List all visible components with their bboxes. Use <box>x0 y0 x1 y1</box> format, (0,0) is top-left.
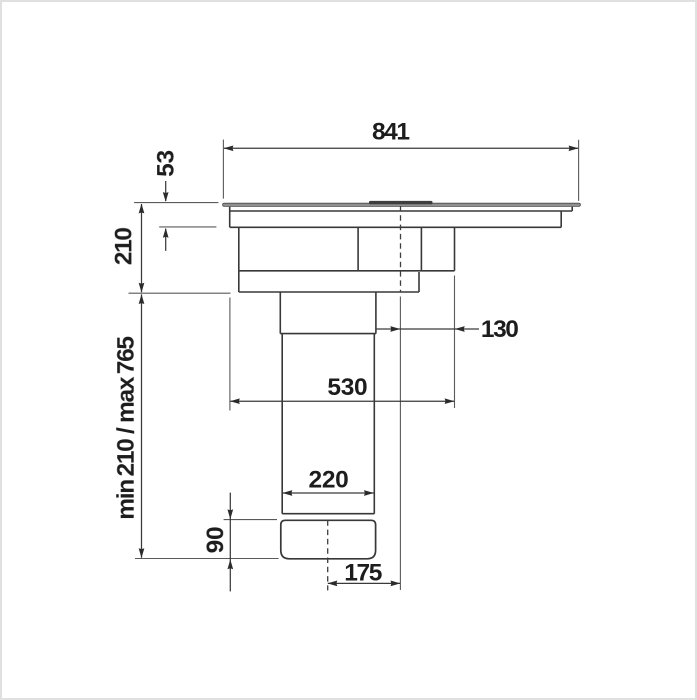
svg-text:175: 175 <box>344 560 381 587</box>
svg-text:530: 530 <box>327 374 367 401</box>
svg-text:210: 210 <box>110 228 137 265</box>
svg-text:53: 53 <box>153 150 180 177</box>
svg-text:min 210 / max 765: min 210 / max 765 <box>113 337 140 520</box>
svg-text:220: 220 <box>309 466 349 493</box>
svg-text:841: 841 <box>372 119 409 146</box>
svg-text:130: 130 <box>481 316 518 343</box>
svg-text:90: 90 <box>202 527 229 554</box>
